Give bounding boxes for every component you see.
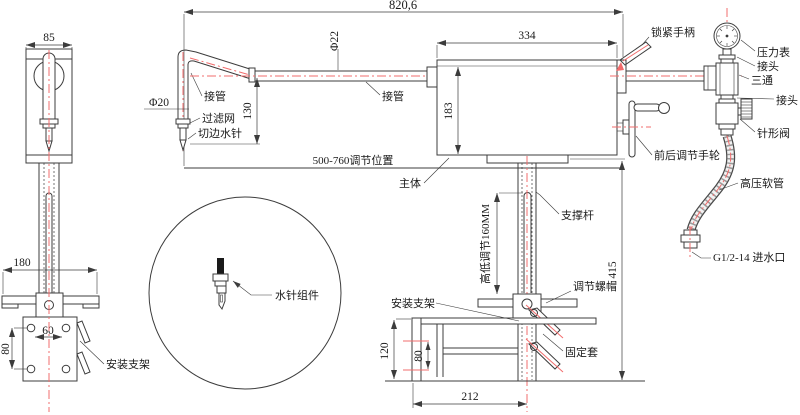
- label-adapter-top: 接头: [757, 60, 779, 73]
- bracket-tab-upper: [77, 321, 90, 343]
- crank-knob: [659, 103, 670, 114]
- adapter-top: [719, 55, 735, 59]
- lock-handle: 锁紧手柄: [616, 25, 695, 93]
- needle-shank: [217, 258, 224, 274]
- main-pipe: Φ22 接管: [190, 31, 437, 103]
- dim-body-width-text: 334: [518, 30, 536, 42]
- adapter-bottom: [721, 95, 733, 99]
- label-pipe-bent: 接管: [204, 89, 226, 103]
- label-needle-valve: 针形阀: [757, 126, 790, 140]
- dim-needle-drop-text: 130: [242, 102, 254, 120]
- dim-side-height-text: 120: [379, 342, 391, 360]
- dim-adjust-range-text: 500-760调节位置: [313, 153, 394, 167]
- dim-hole-span-v-text: 80: [0, 343, 12, 355]
- label-needle-assembly: 水针组件: [275, 288, 319, 302]
- label-filter: 过滤网: [202, 112, 235, 125]
- dim-pipe-dia-bent-text: Φ20: [149, 97, 169, 109]
- label-trim-needle: 切边水针: [198, 126, 242, 140]
- drawing-canvas: 820,6 85 180 60 80 安装支架: [0, 0, 800, 415]
- label-lock-handle: 锁紧手柄: [651, 25, 695, 39]
- dim-overall-width: 820,6: [184, 0, 623, 166]
- label-pipe-main: 接管: [382, 89, 404, 103]
- fb-handwheel: 前后调节手轮: [612, 101, 720, 162]
- side-bracket: 120 80 212 安装支架: [379, 296, 645, 408]
- dim-pipe-dia-main-text: Φ22: [329, 31, 341, 51]
- dim-overall-height-text: 415: [607, 261, 619, 279]
- detail-view: 水针组件: [149, 197, 341, 389]
- tee-body: [716, 63, 738, 95]
- label-support-rod: 支撑杆: [561, 208, 594, 222]
- pressure-gauge: [714, 23, 740, 55]
- dim-body-height-text: 183: [443, 102, 455, 120]
- label-tee: 三通: [751, 74, 773, 87]
- label-mount-bracket-side: 安装支架: [391, 296, 435, 310]
- engineering-drawing: 820,6 85 180 60 80 安装支架: [0, 0, 800, 415]
- label-water-inlet: G1/2-14 进水口: [713, 251, 785, 264]
- bent-pipe-assembly: Φ20 接管 过滤网 切边水针 130: [144, 50, 260, 152]
- dim-bracket-width-text: 180: [13, 257, 31, 269]
- label-pressure-gauge: 压力表: [757, 45, 790, 59]
- label-fixing-sleeve: 固定套: [565, 345, 598, 359]
- label-adapter-bottom: 接头: [776, 94, 798, 107]
- dim-side-hole-span-text: 80: [413, 350, 425, 362]
- dim-overall-width-text: 820,6: [389, 0, 417, 12]
- label-adjust-nut: 调节螺帽: [573, 280, 617, 293]
- label-mount-bracket-front: 安装支架: [106, 357, 150, 371]
- label-main-body: 主体: [399, 176, 421, 190]
- label-fb-handwheel: 前后调节手轮: [654, 148, 720, 162]
- label-hp-hose: 高压软管: [740, 176, 784, 190]
- front-view: 85 180 60 80 安装支架: [0, 32, 150, 412]
- bracket-tab-lower: [77, 352, 90, 374]
- gauge-tee-valve: [714, 8, 752, 140]
- adjust-clamp: 调节螺帽 固定套: [478, 280, 617, 372]
- dim-hole-span-h-text: 60: [42, 325, 54, 337]
- right-labels: 压力表 接头 三通 接头 针形阀: [737, 40, 798, 140]
- dim-front-width-text: 85: [43, 32, 55, 44]
- dim-side-depth-text: 212: [461, 391, 479, 403]
- dim-height-adjust-text: 高低调节160MM: [478, 204, 492, 284]
- fixing-sleeve-lower: [526, 339, 563, 372]
- needle-valve: [716, 99, 752, 124]
- main-body: 334 183 主体: [399, 30, 617, 190]
